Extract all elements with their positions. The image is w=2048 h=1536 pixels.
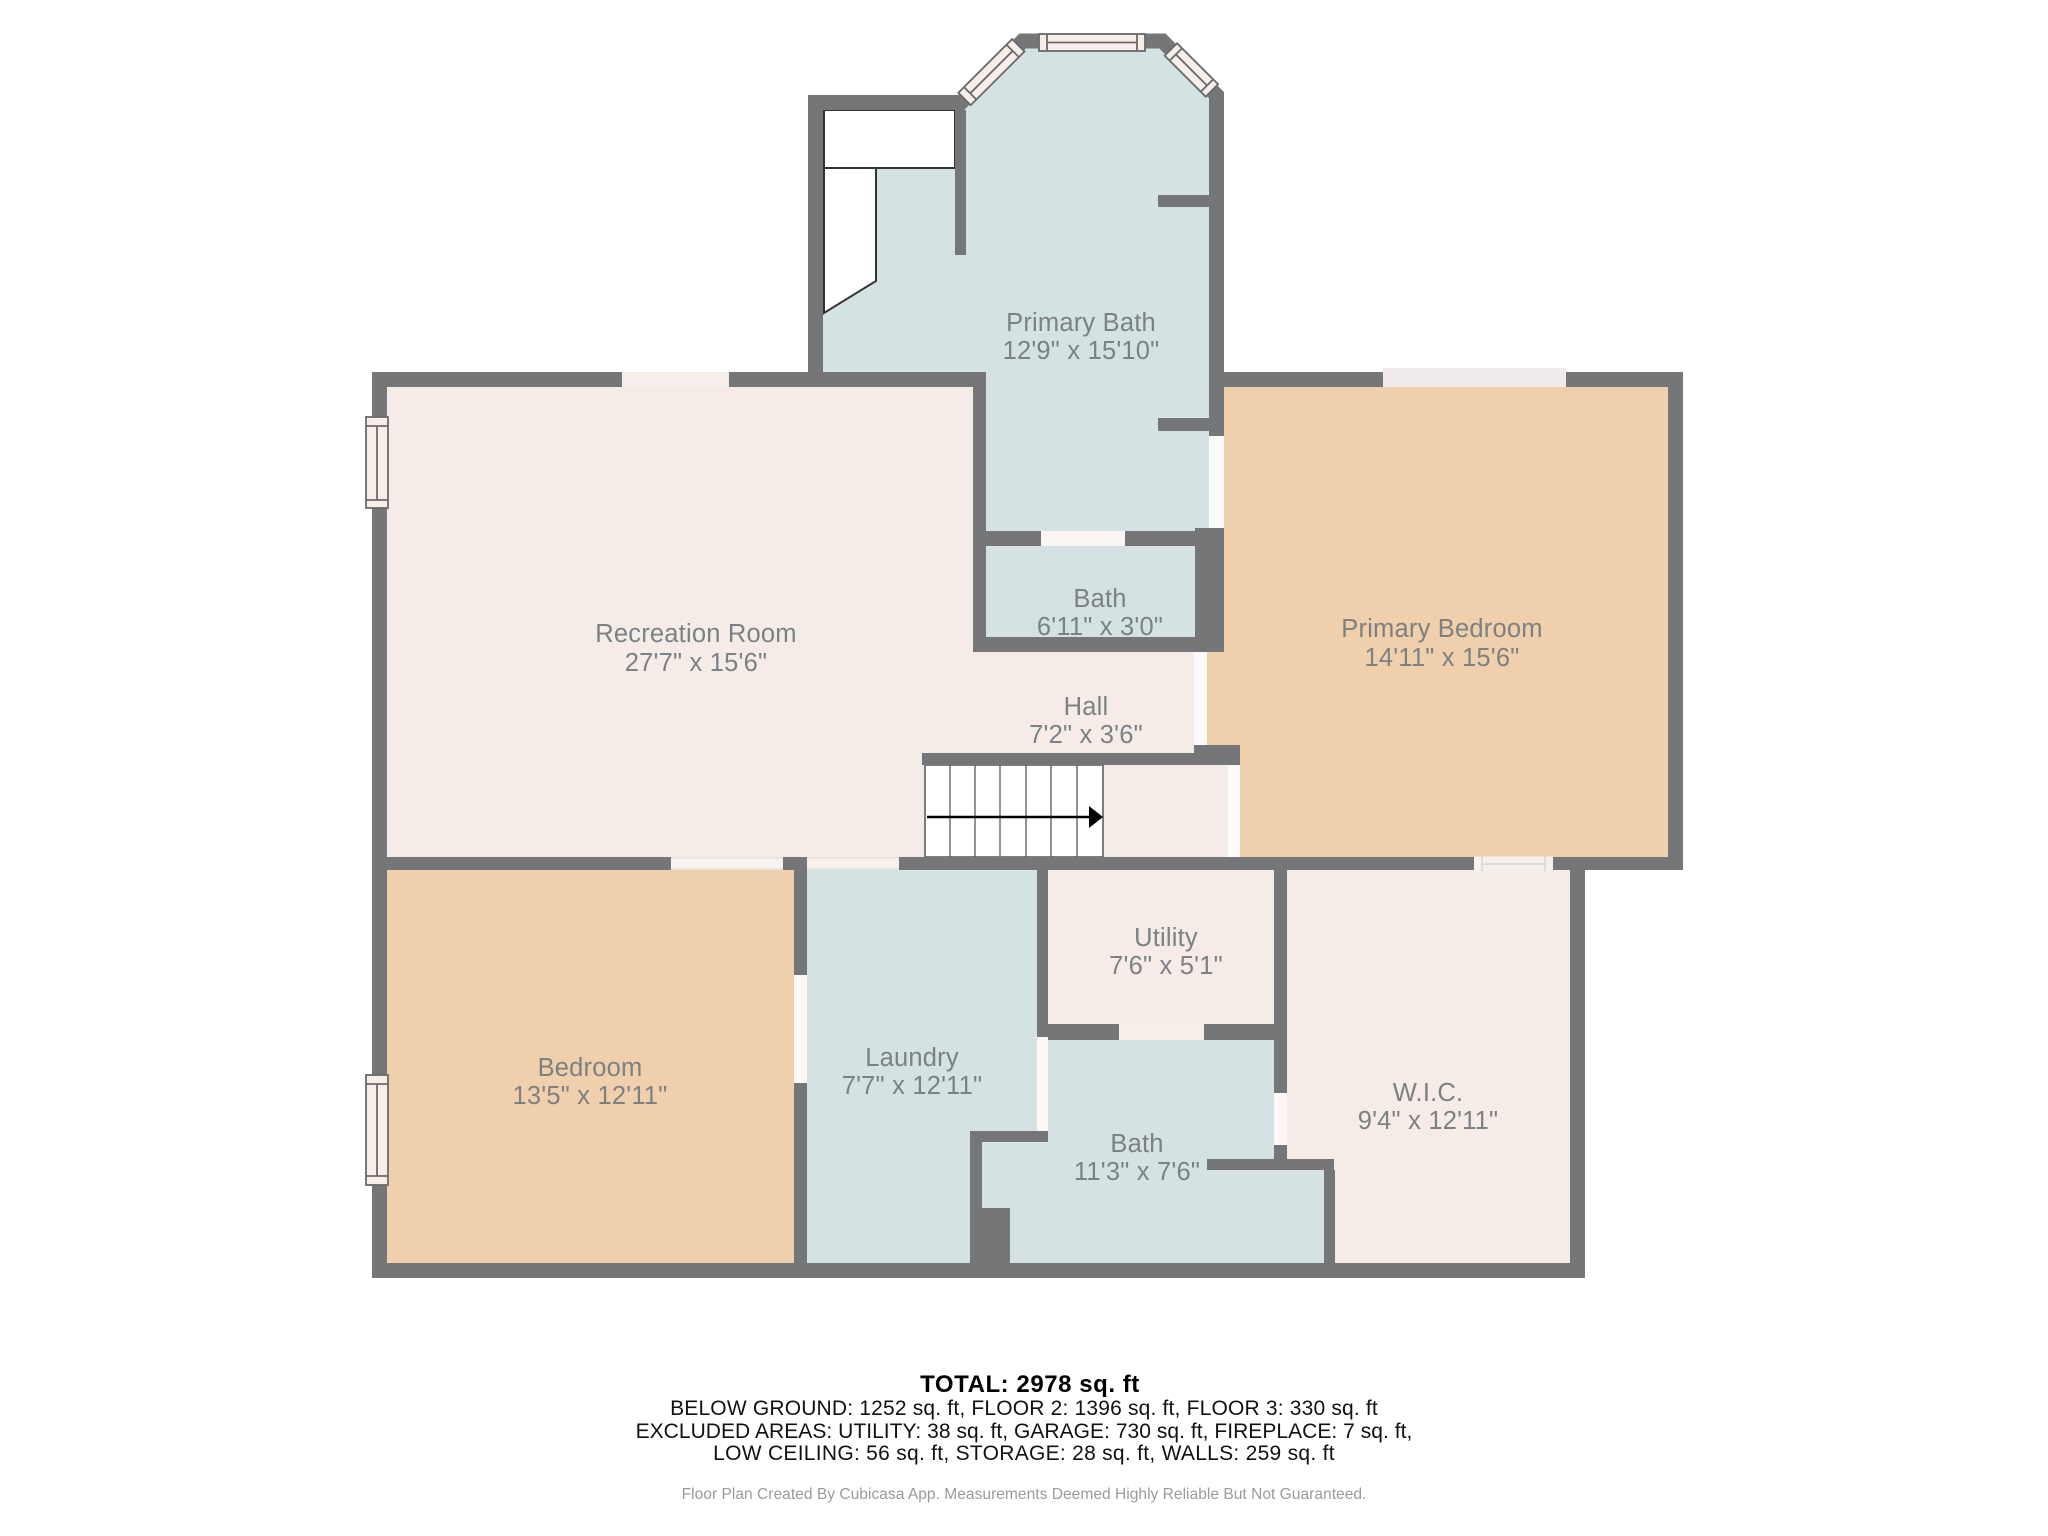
svg-text:Bath: Bath	[1073, 585, 1126, 613]
svg-text:14'11" x 15'6": 14'11" x 15'6"	[1365, 644, 1520, 672]
svg-text:6'11" x 3'0": 6'11" x 3'0"	[1037, 613, 1163, 641]
svg-text:TOTAL: 2978 sq. ft: TOTAL: 2978 sq. ft	[920, 1371, 1140, 1398]
svg-text:12'9" x 15'10": 12'9" x 15'10"	[1003, 337, 1160, 365]
svg-text:7'7" x 12'11": 7'7" x 12'11"	[842, 1072, 983, 1100]
svg-text:Hall: Hall	[1064, 693, 1109, 721]
svg-text:BELOW GROUND: 1252 sq. ft, FLO: BELOW GROUND: 1252 sq. ft, FLOOR 2: 1396…	[670, 1397, 1378, 1420]
svg-text:Floor Plan Created By Cubicasa: Floor Plan Created By Cubicasa App. Meas…	[682, 1486, 1367, 1503]
svg-text:7'2" x 3'6": 7'2" x 3'6"	[1029, 721, 1143, 749]
svg-text:LOW CEILING: 56 sq. ft, STORAG: LOW CEILING: 56 sq. ft, STORAGE: 28 sq. …	[713, 1442, 1335, 1465]
svg-text:Primary Bedroom: Primary Bedroom	[1341, 615, 1542, 643]
svg-text:Bath: Bath	[1110, 1130, 1163, 1158]
svg-text:Bedroom: Bedroom	[538, 1054, 643, 1082]
svg-text:Recreation Room: Recreation Room	[595, 620, 796, 648]
svg-text:EXCLUDED AREAS: UTILITY: 38 sq: EXCLUDED AREAS: UTILITY: 38 sq. ft, GARA…	[636, 1420, 1413, 1443]
svg-text:W.I.C.: W.I.C.	[1393, 1079, 1464, 1107]
svg-text:13'5" x 12'11": 13'5" x 12'11"	[513, 1082, 668, 1110]
svg-text:11'3" x 7'6": 11'3" x 7'6"	[1074, 1158, 1200, 1186]
svg-text:Primary Bath: Primary Bath	[1006, 309, 1156, 337]
svg-text:9'4" x 12'11": 9'4" x 12'11"	[1358, 1107, 1499, 1135]
svg-text:7'6" x 5'1": 7'6" x 5'1"	[1109, 952, 1223, 980]
svg-text:Utility: Utility	[1134, 924, 1198, 952]
svg-text:27'7" x 15'6": 27'7" x 15'6"	[625, 649, 767, 677]
svg-text:Laundry: Laundry	[865, 1044, 959, 1072]
